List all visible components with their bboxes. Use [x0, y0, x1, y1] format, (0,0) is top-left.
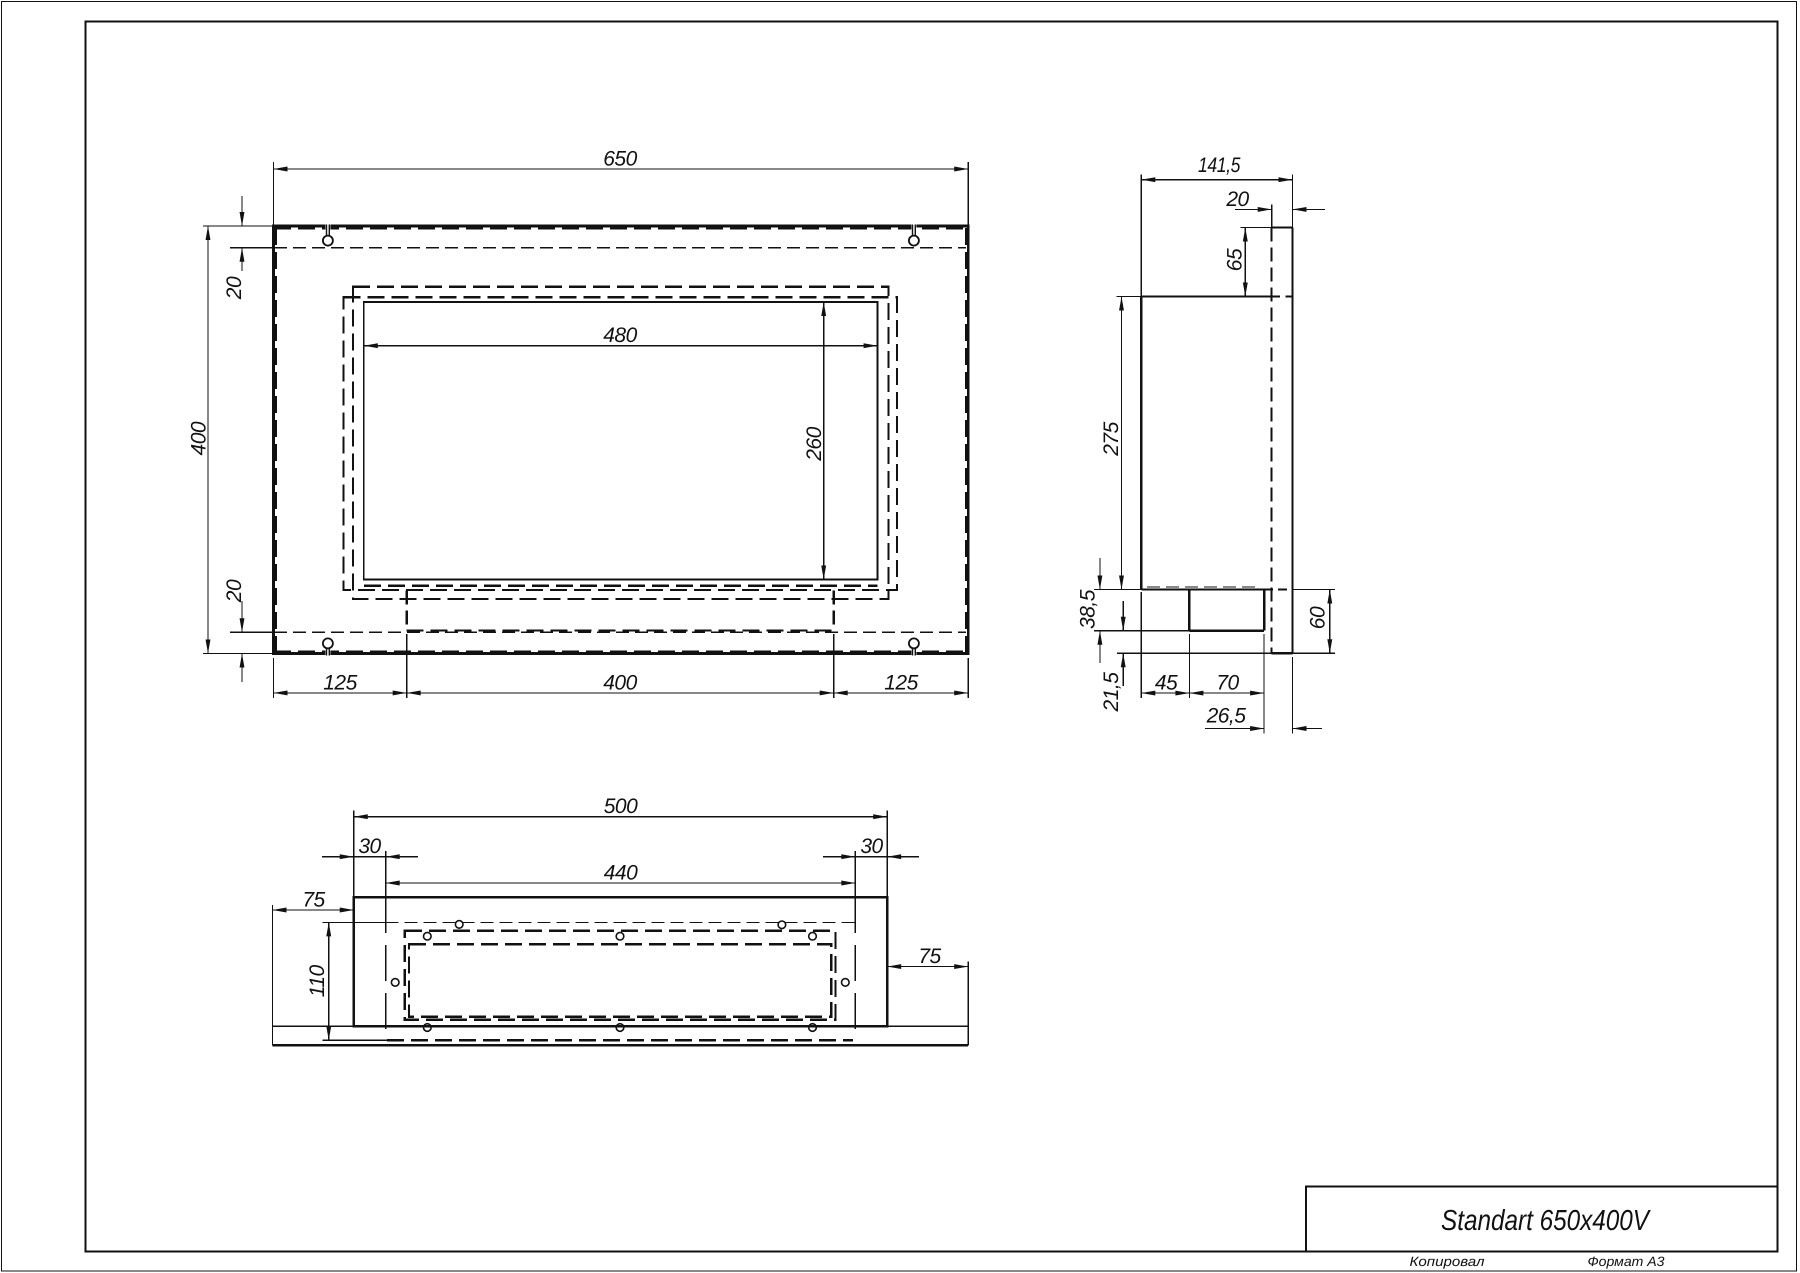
svg-text:110: 110: [306, 964, 329, 997]
svg-text:125: 125: [884, 672, 918, 695]
svg-text:480: 480: [603, 324, 637, 347]
svg-text:275: 275: [1100, 421, 1123, 456]
svg-text:65: 65: [1224, 248, 1247, 271]
svg-text:60: 60: [1307, 606, 1330, 629]
svg-text:650: 650: [603, 148, 637, 171]
svg-text:70: 70: [1216, 672, 1239, 695]
svg-text:45: 45: [1155, 672, 1178, 695]
svg-text:75: 75: [918, 945, 941, 968]
svg-text:Standart 650x400V: Standart 650x400V: [1441, 1205, 1651, 1237]
svg-text:Копировал: Копировал: [1410, 1254, 1485, 1269]
svg-text:400: 400: [603, 672, 637, 695]
svg-text:141,5: 141,5: [1198, 154, 1241, 177]
svg-text:125: 125: [323, 672, 357, 695]
svg-text:21,5: 21,5: [1100, 672, 1123, 713]
svg-text:20: 20: [223, 276, 246, 300]
svg-text:30: 30: [860, 835, 883, 858]
svg-text:440: 440: [604, 862, 638, 885]
svg-text:30: 30: [358, 835, 381, 858]
svg-text:260: 260: [803, 426, 826, 461]
svg-text:20: 20: [1225, 188, 1249, 211]
svg-text:75: 75: [302, 889, 325, 912]
svg-text:500: 500: [604, 795, 638, 818]
svg-text:400: 400: [188, 421, 211, 455]
svg-text:26,5: 26,5: [1206, 705, 1247, 728]
svg-text:20: 20: [223, 579, 246, 603]
svg-text:Формат А3: Формат А3: [1588, 1254, 1666, 1269]
svg-text:38,5: 38,5: [1077, 589, 1100, 629]
